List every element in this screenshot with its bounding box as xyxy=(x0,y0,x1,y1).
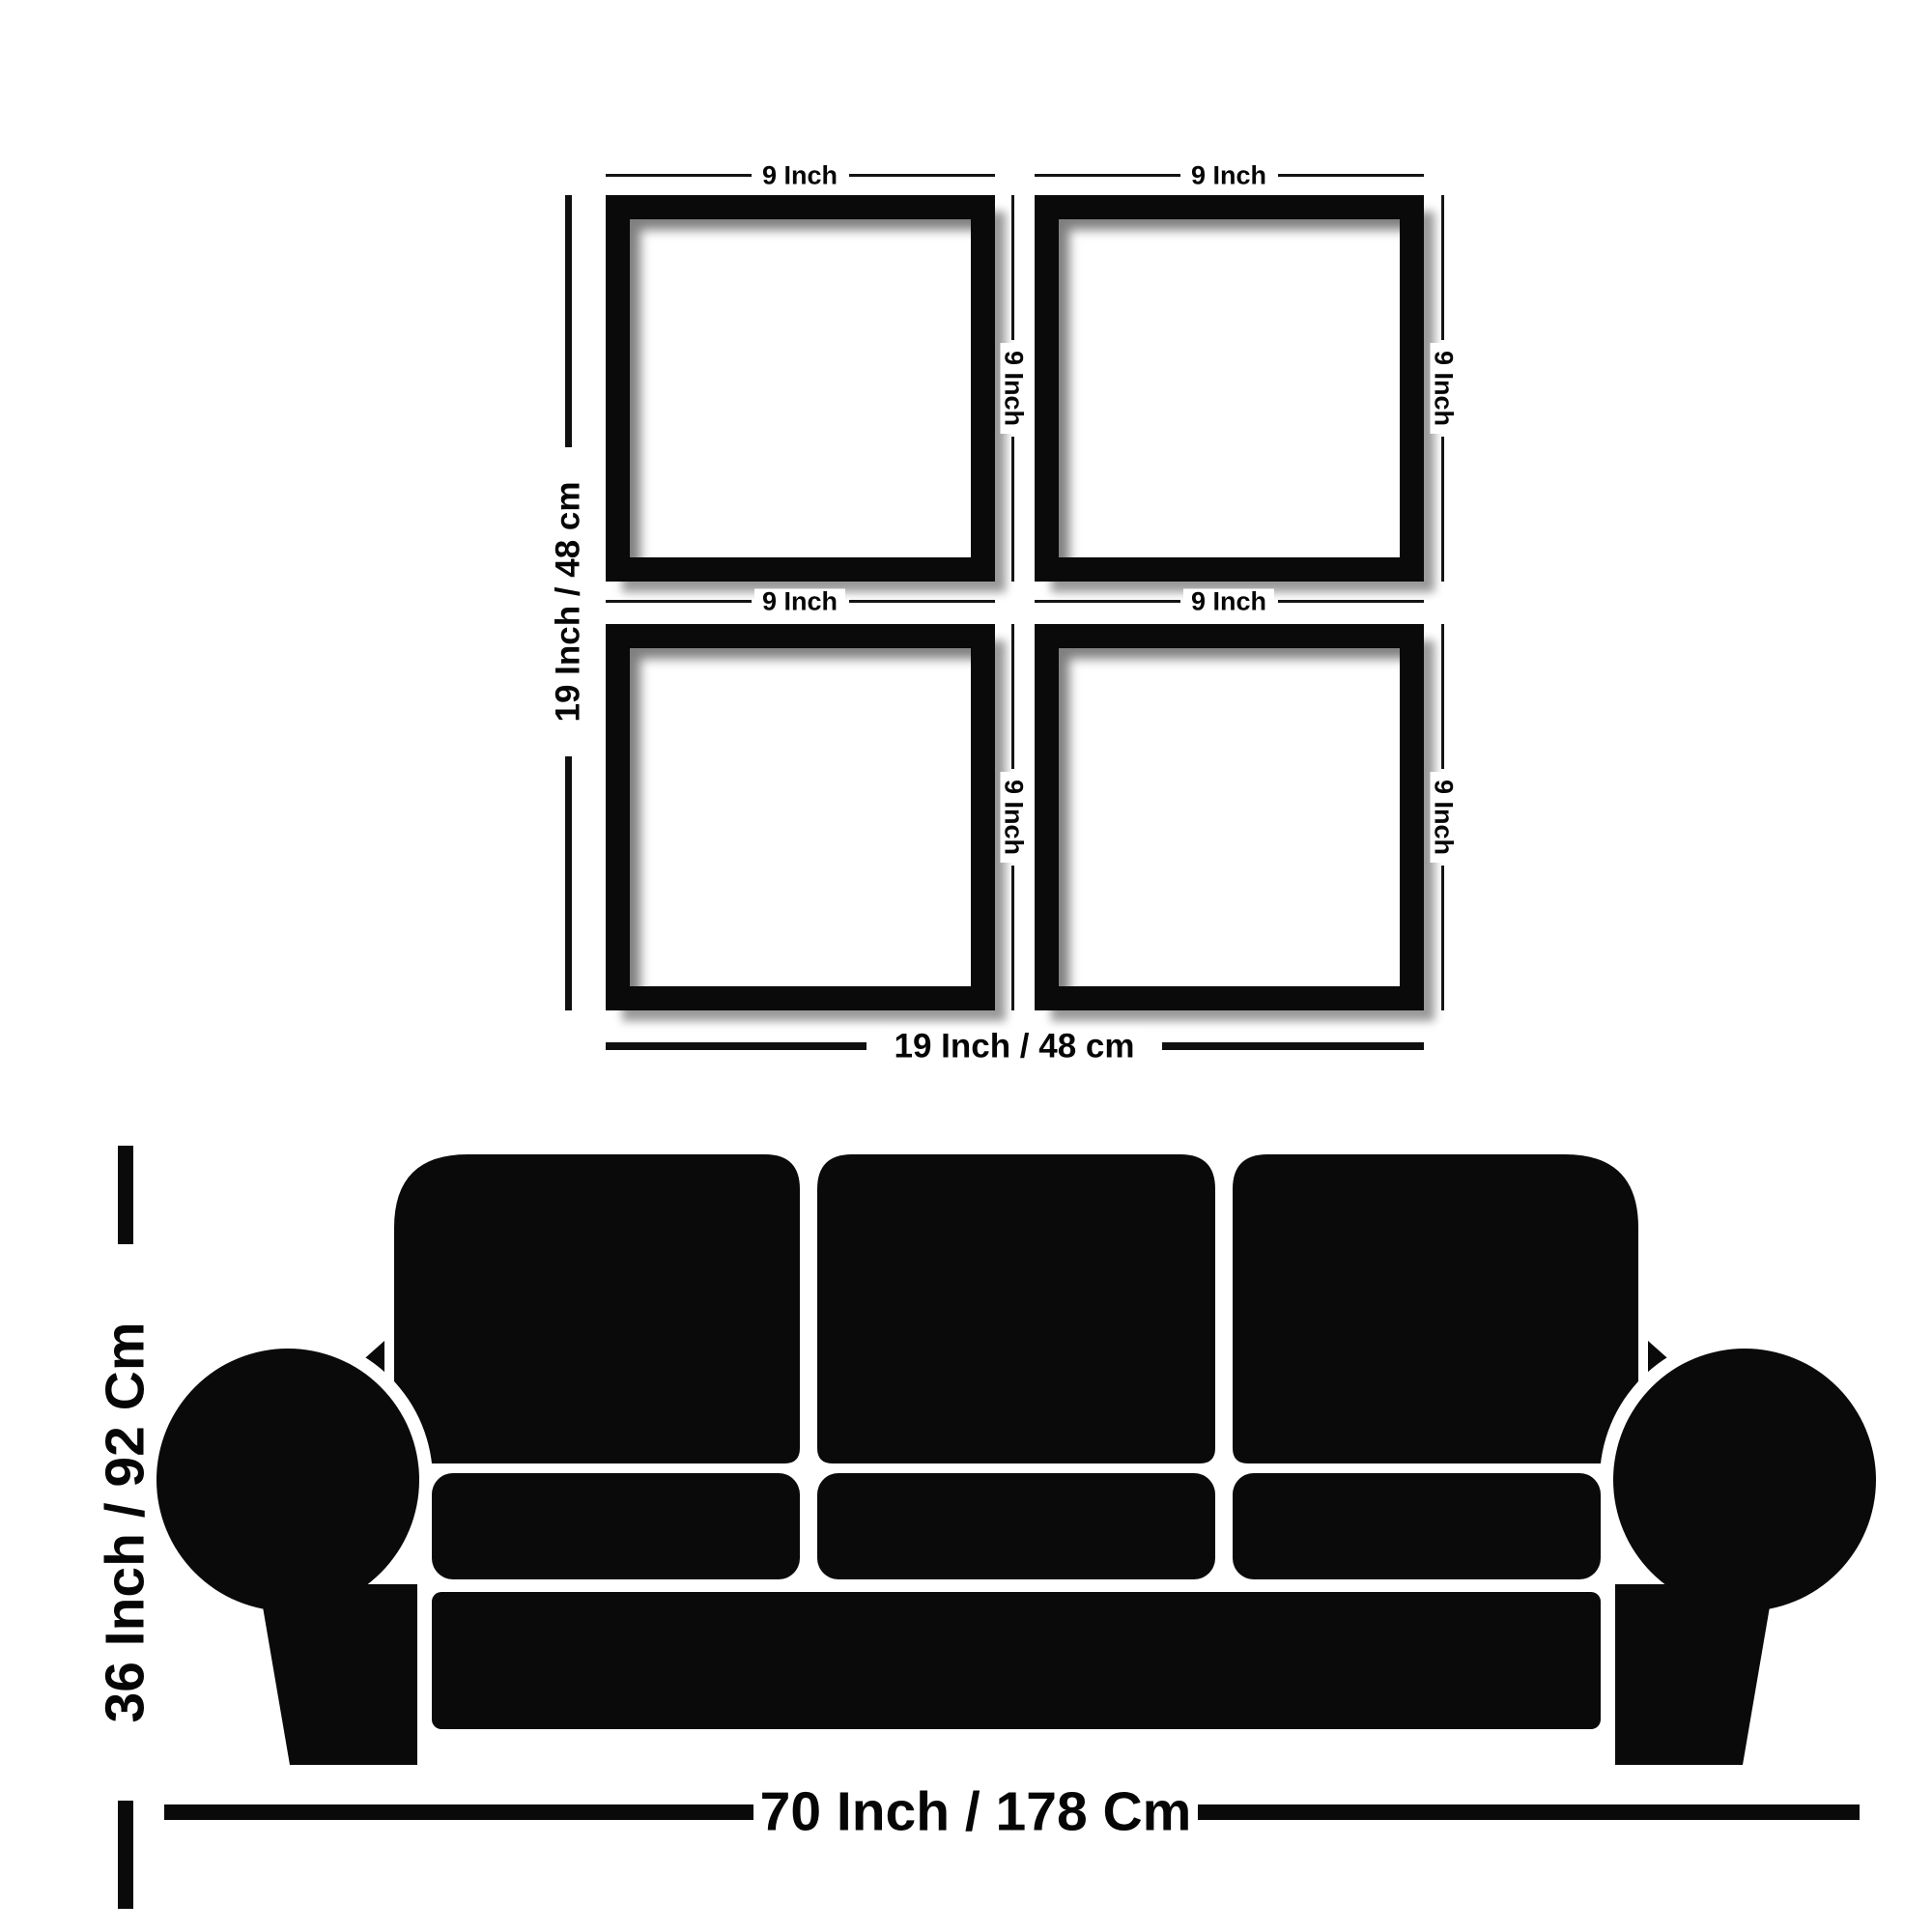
sofa-width-line xyxy=(1198,1804,1860,1820)
sofa-height-line xyxy=(118,1146,133,1244)
sofa-seat-cushion-right xyxy=(1233,1473,1601,1579)
sofa-width-line xyxy=(164,1804,753,1820)
sofa-left-arm xyxy=(156,1349,419,1611)
sofa-seat-cushion-left xyxy=(432,1473,800,1579)
size-diagram: 9 Inch 9 Inch 9 Inch 9 Inch 9 Inch 9 Inc… xyxy=(0,0,1932,1932)
sofa-width-label: 70 Inch / 178 Cm xyxy=(760,1785,1192,1840)
sofa-back-cushion-left xyxy=(394,1154,800,1463)
sofa-right-arm xyxy=(1613,1349,1876,1611)
sofa-back-cushion-right xyxy=(1233,1154,1638,1463)
sofa-seat-cushion-middle xyxy=(817,1473,1215,1579)
sofa-back-cushion-middle xyxy=(817,1154,1215,1463)
sofa-right-leg xyxy=(1615,1584,1774,1765)
sofa-front-rail xyxy=(432,1592,1601,1729)
sofa-illustration xyxy=(0,0,1932,1932)
sofa-height-line xyxy=(118,1801,133,1909)
sofa-height-label: 36 Inch / 92 Cm xyxy=(99,1321,154,1722)
sofa-left-leg xyxy=(259,1584,417,1765)
